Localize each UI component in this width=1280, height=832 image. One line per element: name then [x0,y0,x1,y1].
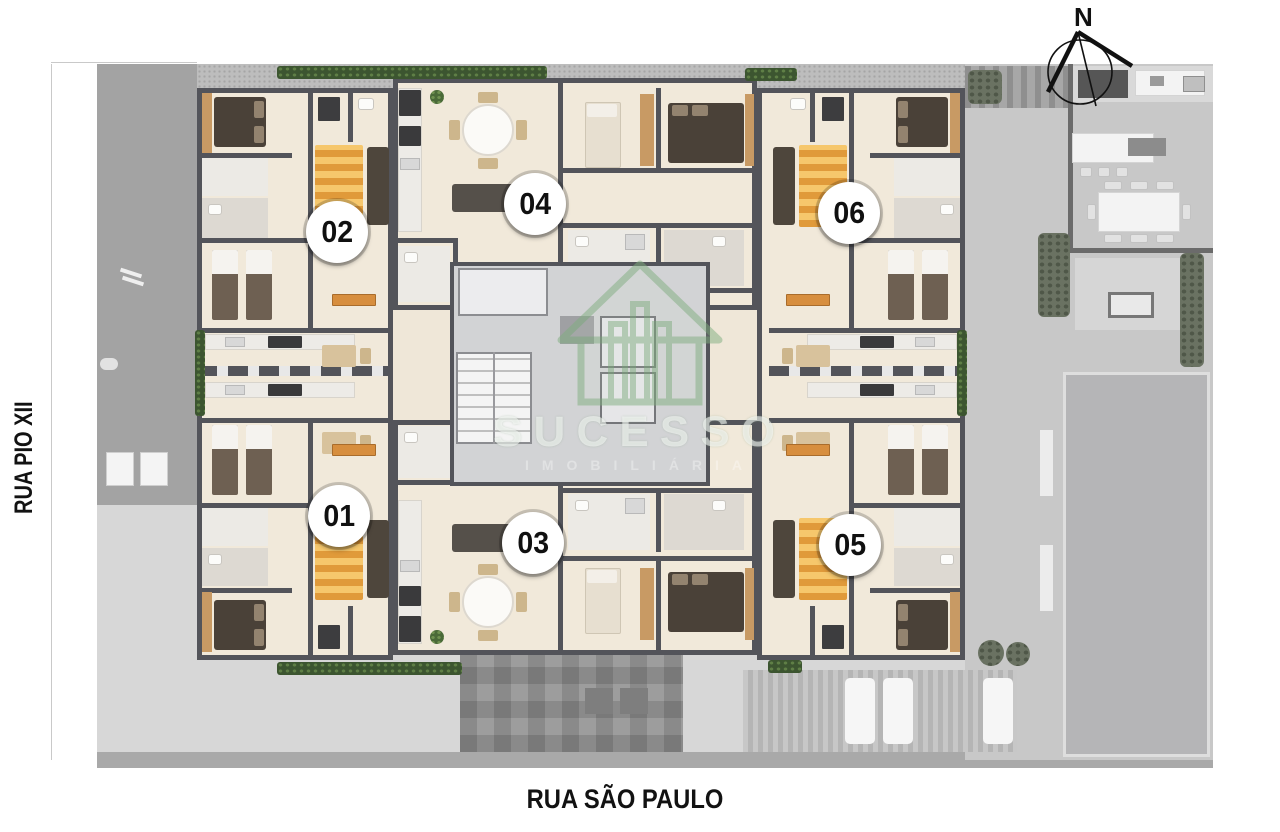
toilet [358,98,374,110]
round-dining-table [462,104,514,156]
toilet [404,252,418,263]
wall [850,238,965,243]
wall [348,606,353,656]
vent-grid [1183,76,1205,92]
cooktop [860,384,894,396]
chair [449,592,460,612]
stool [1116,167,1128,177]
closet [894,508,960,546]
parking-deck [743,670,1017,752]
shower [625,498,645,514]
sink [1150,76,1164,86]
wall [769,418,965,423]
wall [308,420,313,655]
sink [225,385,245,395]
unit-badge-05: 05 [819,514,881,576]
single-bed [246,425,272,495]
sidewalk-line [51,64,52,760]
sideboard [786,444,830,456]
fire-pit [1108,292,1154,318]
single-bed [888,250,914,320]
fridge [399,90,421,116]
toilet [208,204,222,215]
wall [393,480,455,485]
bench [106,452,134,486]
toilet [712,236,726,247]
bench [1040,545,1053,611]
toilet [712,500,726,511]
wall-window-band [769,366,965,376]
hall [458,268,548,316]
wall [656,490,661,552]
unit-number: 01 [323,498,355,534]
parking-stall [983,678,1013,744]
bench [140,452,168,486]
sideboard [332,444,376,456]
hedge [957,330,967,416]
sink [225,337,245,347]
single-bed [888,425,914,495]
sink [400,158,420,170]
closet [202,158,268,196]
wall [197,418,393,423]
wardrobe [745,94,754,166]
closet [202,508,268,546]
hedge [277,66,547,79]
wall-window-band [197,366,393,376]
single-bed [922,425,948,495]
chair [478,630,498,641]
tree [1006,642,1030,666]
wardrobe [202,592,212,652]
pillow [587,104,617,117]
sofa [773,520,795,598]
unit-number: 02 [321,214,353,250]
hedge [195,330,205,416]
washer [822,97,844,121]
wall [810,606,815,656]
toilet [208,554,222,565]
wall [308,90,313,330]
unit-number: 03 [517,525,549,561]
floor-plan: SUCESSO IMOBILIÁRIA 01 02 03 04 05 06 N … [0,0,1280,832]
chair [478,158,498,169]
wall [197,328,393,333]
street-label-rua-sao-paulo: RUA SÃO PAULO [511,784,740,815]
island-cooktop [1128,138,1166,156]
chair [1182,204,1191,220]
stair-rail [493,352,495,444]
single-bed [212,250,238,320]
dog-icon [100,358,118,370]
compass-north-label: N [1074,6,1093,32]
sidewalk-line [51,62,197,63]
single-bed [246,250,272,320]
washer [318,97,340,121]
round-dining-table [462,576,514,628]
single-bed [212,425,238,495]
chair [478,564,498,575]
street-label-rua-pio-xii: RUA PIO XII [10,394,50,522]
elevator [600,316,656,368]
chair [360,348,371,364]
covered-structure [1063,372,1210,757]
stool [1080,167,1092,177]
bbq-patio [460,655,683,752]
common-dining-table [1098,192,1180,232]
parking-stall [845,678,875,744]
fridge [399,616,421,642]
wardrobe [202,93,212,153]
single-bed [922,250,948,320]
washer [822,625,844,649]
wall [348,90,353,142]
sideboard [786,294,830,306]
wall [656,560,661,650]
hedge [277,662,462,675]
wardrobe [950,592,960,652]
chair [1087,204,1096,220]
cooktop [860,336,894,348]
sofa [773,147,795,225]
plant [968,70,1002,104]
double-bed [896,97,948,147]
sideboard [332,294,376,306]
chair [449,120,460,140]
hedge [768,660,802,673]
toilet [575,500,589,511]
unit-badge-06: 06 [818,182,880,244]
dining-table [796,345,830,367]
sofa [367,520,389,598]
hedge-grey [1180,253,1204,367]
chair [1156,181,1174,190]
wall [810,90,815,142]
chair [1130,234,1148,243]
grill [620,688,648,714]
sofa [367,147,389,225]
sink [915,385,935,395]
chair [1130,181,1148,190]
cooktop [268,336,302,348]
chair [478,92,498,103]
wall [197,238,312,243]
double-bed [668,103,744,163]
sink [915,337,935,347]
unit-badge-01: 01 [308,485,370,547]
plant [430,90,444,104]
wall [393,238,455,243]
cooktop [268,384,302,396]
plant [430,630,444,644]
unit-badge-04: 04 [504,173,566,235]
parking-stall [883,678,913,744]
closet [894,158,960,196]
planter [1038,233,1070,317]
toilet [575,236,589,247]
wardrobe [640,568,654,640]
chair [516,120,527,140]
double-bed [668,572,744,632]
shower [625,234,645,250]
unit-badge-02: 02 [306,201,368,263]
wall [656,88,661,170]
bathroom [664,494,744,550]
entry-hall [393,310,450,420]
chair [782,348,793,364]
unit-badge-03: 03 [502,512,564,574]
double-bed [214,97,266,147]
toilet [790,98,806,110]
unit-number: 06 [833,195,865,231]
grill [585,688,613,714]
sink [400,560,420,572]
north-compass-icon: N [1040,6,1140,112]
pillow [587,570,617,583]
double-bed [214,600,266,650]
toilet [940,204,954,215]
stool [1098,167,1110,177]
unit-number: 05 [834,527,866,563]
elevator [600,372,656,424]
bench [1040,430,1053,496]
toilet [940,554,954,565]
chair [516,592,527,612]
duct [560,316,594,344]
wall [560,168,757,173]
dining-table [322,345,356,367]
washer [318,625,340,649]
wardrobe [745,568,754,640]
double-bed [896,600,948,650]
chair [1156,234,1174,243]
tree [978,640,1004,666]
hedge [745,68,797,81]
wardrobe [950,93,960,153]
chair [1104,181,1122,190]
oven [399,586,421,606]
left-walkway-strip [97,64,197,510]
oven [399,126,421,146]
wall [769,328,965,333]
toilet [404,432,418,443]
unit-number: 04 [519,186,551,222]
wardrobe [640,94,654,166]
chair [1104,234,1122,243]
